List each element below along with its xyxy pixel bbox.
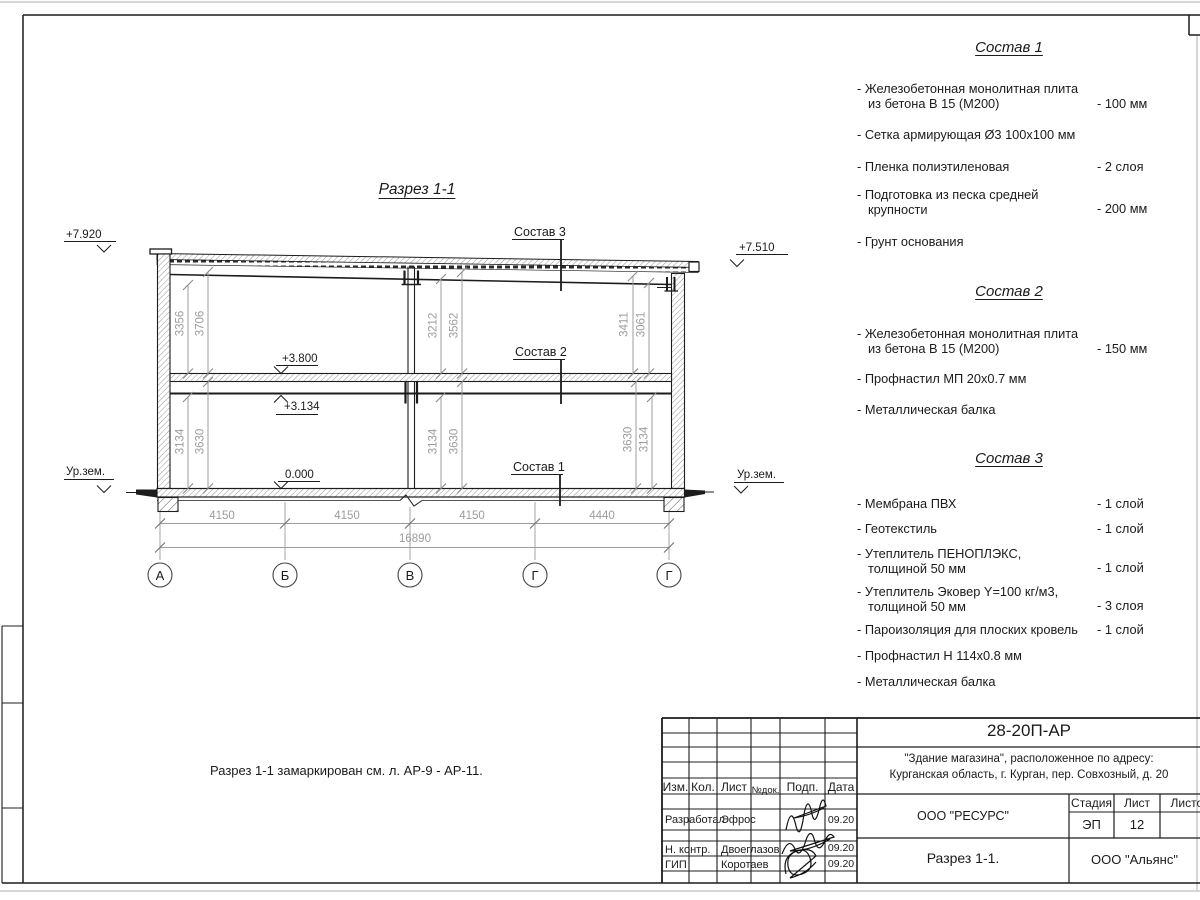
hdim-v-g: 4150 xyxy=(442,509,502,524)
vdim: 3061 xyxy=(635,295,650,355)
list-item: - Металлическая балка xyxy=(857,674,996,689)
row-name: Эфрос xyxy=(721,813,756,828)
row-date: 09.20 xyxy=(826,857,856,872)
sheet-label: Лист xyxy=(1114,796,1160,811)
vdim: 3630 xyxy=(622,410,637,470)
list-item: из бетона В 15 (М200) xyxy=(868,96,999,111)
list-item: - Утеплитель ПЕНОПЛЭКС, xyxy=(857,546,1021,561)
ground-wedge-right xyxy=(685,490,706,498)
list-item: - Металлическая балка xyxy=(857,402,996,417)
list-item: - Грунт основания xyxy=(857,234,964,249)
list-item: толщиной 50 мм xyxy=(868,561,966,576)
doc-number: 28-20П-АР xyxy=(857,723,1200,738)
right-wall xyxy=(672,274,685,489)
list-item-value: - 1 слой xyxy=(1097,521,1144,536)
hdim-g-g: 4440 xyxy=(572,509,632,524)
list-item-value: - 1 слой xyxy=(1097,560,1144,575)
vdim: 3630 xyxy=(448,412,463,472)
row-role: Н. контр. xyxy=(665,843,710,858)
col-kol: Кол. xyxy=(689,780,717,795)
list-item: - Профнастил МП 20х0.7 мм xyxy=(857,371,1026,386)
layer-label-sostav2: Состав 2 xyxy=(515,345,567,360)
signature-3 xyxy=(785,850,816,878)
column-upper xyxy=(402,267,422,374)
axis-label-b: Б xyxy=(273,568,297,583)
elevation-floor2: +3.800 xyxy=(282,352,318,367)
row-role: ГИП xyxy=(665,858,687,873)
row-date: 09.20 xyxy=(826,841,856,856)
list-item: - Подготовка из песка средней xyxy=(857,187,1038,202)
elevation-roof-right: +7.510 xyxy=(739,241,775,256)
vdim: 3134 xyxy=(638,410,653,470)
list-item: - Пленка полиэтиленовая xyxy=(857,159,1009,174)
axis-label-g2: Г xyxy=(657,568,681,583)
list-item: толщиной 50 мм xyxy=(868,599,966,614)
list-item-value: - 150 мм xyxy=(1097,341,1147,356)
col-izm: Изм. xyxy=(662,780,689,795)
list-item: - Утеплитель Эковер Y=100 кг/м3, xyxy=(857,584,1058,599)
composition-2-title: Состав 2 xyxy=(944,284,1074,299)
ground-wedge-left xyxy=(136,490,157,498)
column-lower xyxy=(406,382,418,488)
row-name: Двоеглазов xyxy=(721,843,779,858)
vdim: 3356 xyxy=(174,294,189,354)
object-description-line2: Курганская область, г. Курган, пер. Совх… xyxy=(857,768,1200,783)
vdim: 3630 xyxy=(194,412,209,472)
elevation-roof-left: +7.920 xyxy=(66,228,102,243)
col-ndok: №док. xyxy=(751,783,780,798)
list-item-value: - 1 слой xyxy=(1097,622,1144,637)
list-item-value: - 2 слоя xyxy=(1097,159,1144,174)
footing-right xyxy=(664,498,684,512)
vdim: 3134 xyxy=(174,412,189,472)
row-role: Разработал xyxy=(665,813,725,828)
sheet-value: 12 xyxy=(1114,817,1160,832)
col-podp: Подп. xyxy=(780,780,825,795)
elevation-beam: +3.134 xyxy=(284,400,320,415)
drawing-sheet: Разрез 1-1 Разрез 1-1 замаркирован см. л… xyxy=(0,0,1200,900)
col-data: Дата xyxy=(825,780,857,795)
floor2-slab xyxy=(170,374,672,382)
list-item: крупности xyxy=(868,202,928,217)
footing-left xyxy=(158,498,178,512)
axis-label-v: В xyxy=(398,568,422,583)
vdim: 3562 xyxy=(448,296,463,356)
axis-label-g1: Г xyxy=(523,568,547,583)
signature-1 xyxy=(786,800,826,832)
composition-1-title: Состав 1 xyxy=(944,40,1074,55)
list-item: - Профнастил Н 114х0.8 мм xyxy=(857,648,1022,663)
ground-level-right: Ур.зем. xyxy=(737,468,776,483)
vdim: 3411 xyxy=(618,295,633,355)
layer-label-sostav3: Состав 3 xyxy=(514,225,566,240)
parapet-cap xyxy=(150,249,172,254)
vdim: 3212 xyxy=(427,296,442,356)
axis-label-a: А xyxy=(148,568,172,583)
list-item: - Железобетонная монолитная плита xyxy=(857,326,1078,341)
layer-label-sostav1: Состав 1 xyxy=(513,460,565,475)
list-item-value: - 100 мм xyxy=(1097,96,1147,111)
list-item: - Железобетонная монолитная плита xyxy=(857,81,1078,96)
vdim: 3706 xyxy=(194,294,209,354)
ground-slab xyxy=(157,489,685,498)
composition-3-title: Состав 3 xyxy=(944,451,1074,466)
list-item: - Мембрана ПВХ xyxy=(857,496,956,511)
stage-value: ЭП xyxy=(1069,817,1114,832)
elevation-zero: 0.000 xyxy=(285,468,314,483)
list-item: - Геотекстиль xyxy=(857,521,937,536)
sheets-label: Листов xyxy=(1160,796,1200,811)
ground-level-left: Ур.зем. xyxy=(66,465,105,480)
design-company: ООО "РЕСУРС" xyxy=(857,809,1069,824)
hdim-b-v: 4150 xyxy=(317,509,377,524)
section-note: Разрез 1-1 замаркирован см. л. АР-9 - АР… xyxy=(210,763,483,778)
contractor-company: ООО "Альянс" xyxy=(1069,852,1200,867)
building-section xyxy=(126,249,714,512)
vdim: 3134 xyxy=(427,412,442,472)
roof-beam xyxy=(170,275,672,285)
hdim-total: 16890 xyxy=(385,532,445,547)
col-list: Лист xyxy=(717,780,751,795)
drawing-name: Разрез 1-1. xyxy=(857,851,1069,866)
filing-margin-boxes xyxy=(2,626,23,883)
roof-fascia xyxy=(689,262,699,272)
list-item-value: - 1 слой xyxy=(1097,496,1144,511)
hdim-a-b: 4150 xyxy=(192,509,252,524)
list-item-value: - 200 мм xyxy=(1097,201,1147,216)
stage-label: Стадия xyxy=(1069,796,1114,811)
list-item: - Сетка армирующая Ø3 100х100 мм xyxy=(857,127,1075,142)
object-description-line1: "Здание магазина", расположенное по адре… xyxy=(857,752,1200,767)
list-item-value: - 3 слоя xyxy=(1097,598,1144,613)
section-title: Разрез 1-1 xyxy=(357,182,477,197)
row-date: 09.20 xyxy=(826,813,856,828)
left-wall xyxy=(158,254,171,489)
row-name: Коротаев xyxy=(721,858,769,873)
list-item: из бетона В 15 (М200) xyxy=(868,341,999,356)
list-item: - Пароизоляция для плоских кровель xyxy=(857,622,1078,637)
